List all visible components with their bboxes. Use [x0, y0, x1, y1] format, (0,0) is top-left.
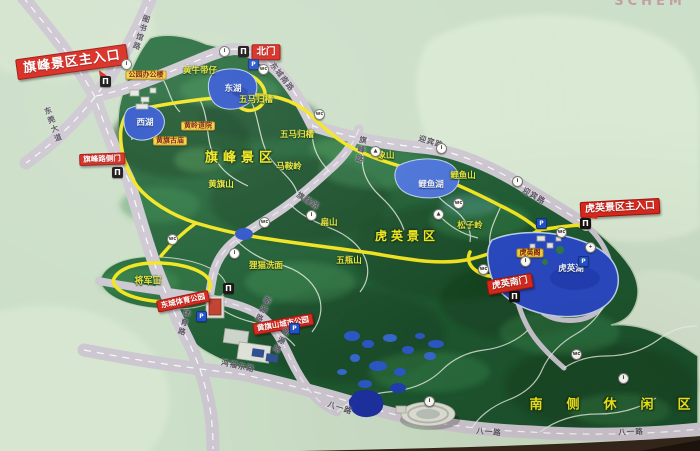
info-icon: i	[512, 176, 523, 187]
cross-icon: +	[585, 242, 596, 253]
peak-icon: ▲	[370, 146, 381, 157]
hill-huangniudaizai: 黄牛带仔	[183, 67, 217, 76]
hill-jiangjunkan: 将军冚	[134, 278, 161, 287]
lake-label-west: 西湖	[136, 119, 153, 128]
parking-icon: P	[578, 256, 589, 267]
hill-wumaguicao-1: 五马归槽	[239, 96, 273, 105]
peak-icon: ▲	[433, 209, 444, 220]
area-title-huying: 虎英景区	[375, 230, 439, 242]
facility-huangling-temple: 黄岭道院	[181, 122, 215, 131]
hill-huangqishan: 黄旗山	[208, 181, 234, 190]
gate-icon: Π	[580, 218, 591, 229]
hill-songziling: 松子岭	[457, 222, 483, 231]
park-map-sign: 旗峰景区主入口 北门 虎英景区主入口 虎英南门 旗峰路侧门 东城体育公园 黄旗山…	[0, 0, 700, 451]
gate-qifeng-side: 旗峰路侧门	[79, 152, 125, 165]
toilet-icon: wc	[556, 227, 567, 238]
photo-watermark: SCHEM	[614, 0, 686, 8]
hill-liyushan: 鲤鱼山	[450, 172, 476, 181]
toilet-icon: wc	[453, 198, 464, 209]
hill-limaoximian: 狸猫洗面	[249, 262, 283, 271]
parking-icon: P	[196, 311, 207, 322]
info-icon: i	[229, 248, 240, 259]
hill-maanling: 马鞍岭	[276, 163, 302, 172]
info-icon: i	[306, 210, 317, 221]
info-icon: i	[618, 373, 629, 384]
parking-icon: P	[536, 218, 547, 229]
hill-bianshan: 扁山	[320, 219, 337, 228]
toilet-icon: wc	[259, 217, 270, 228]
gate-north: 北门	[251, 44, 280, 60]
toilet-icon: wc	[314, 109, 325, 120]
road-label-bayi-2: 八一路	[476, 427, 502, 437]
gate-icon: Π	[100, 76, 111, 87]
gate-icon: Π	[223, 283, 234, 294]
facility-huyingge: 虎英阁	[517, 249, 544, 258]
area-title-south-leisure: 南侧休闲区	[529, 399, 700, 412]
gate-icon: Π	[238, 46, 249, 57]
info-icon: i	[424, 396, 435, 407]
gate-icon: Π	[112, 167, 123, 178]
facility-huangqi-temple: 黄旗古庙	[153, 137, 187, 146]
info-icon: i	[520, 256, 531, 267]
info-icon: i	[219, 46, 230, 57]
area-title-qifeng: 旗峰景区	[205, 152, 277, 165]
hill-wumaguicao-2: 五马归槽	[280, 131, 314, 140]
facility-park-office: 公园办公楼	[126, 71, 167, 80]
hill-wupingshan: 五瓶山	[336, 257, 362, 266]
toilet-icon: wc	[258, 64, 269, 75]
toilet-icon: wc	[571, 349, 582, 360]
parking-icon: P	[289, 323, 300, 334]
info-icon: i	[436, 143, 447, 154]
toilet-icon: wc	[478, 264, 489, 275]
gate-icon: Π	[509, 291, 520, 302]
lake-label-liyu: 鲤鱼湖	[418, 181, 444, 190]
toilet-icon: wc	[167, 234, 178, 245]
info-icon: i	[121, 59, 132, 70]
pond-small	[235, 228, 253, 240]
road-label-bayi-3: 八一路	[618, 428, 644, 436]
lake-label-east: 东湖	[224, 85, 241, 94]
